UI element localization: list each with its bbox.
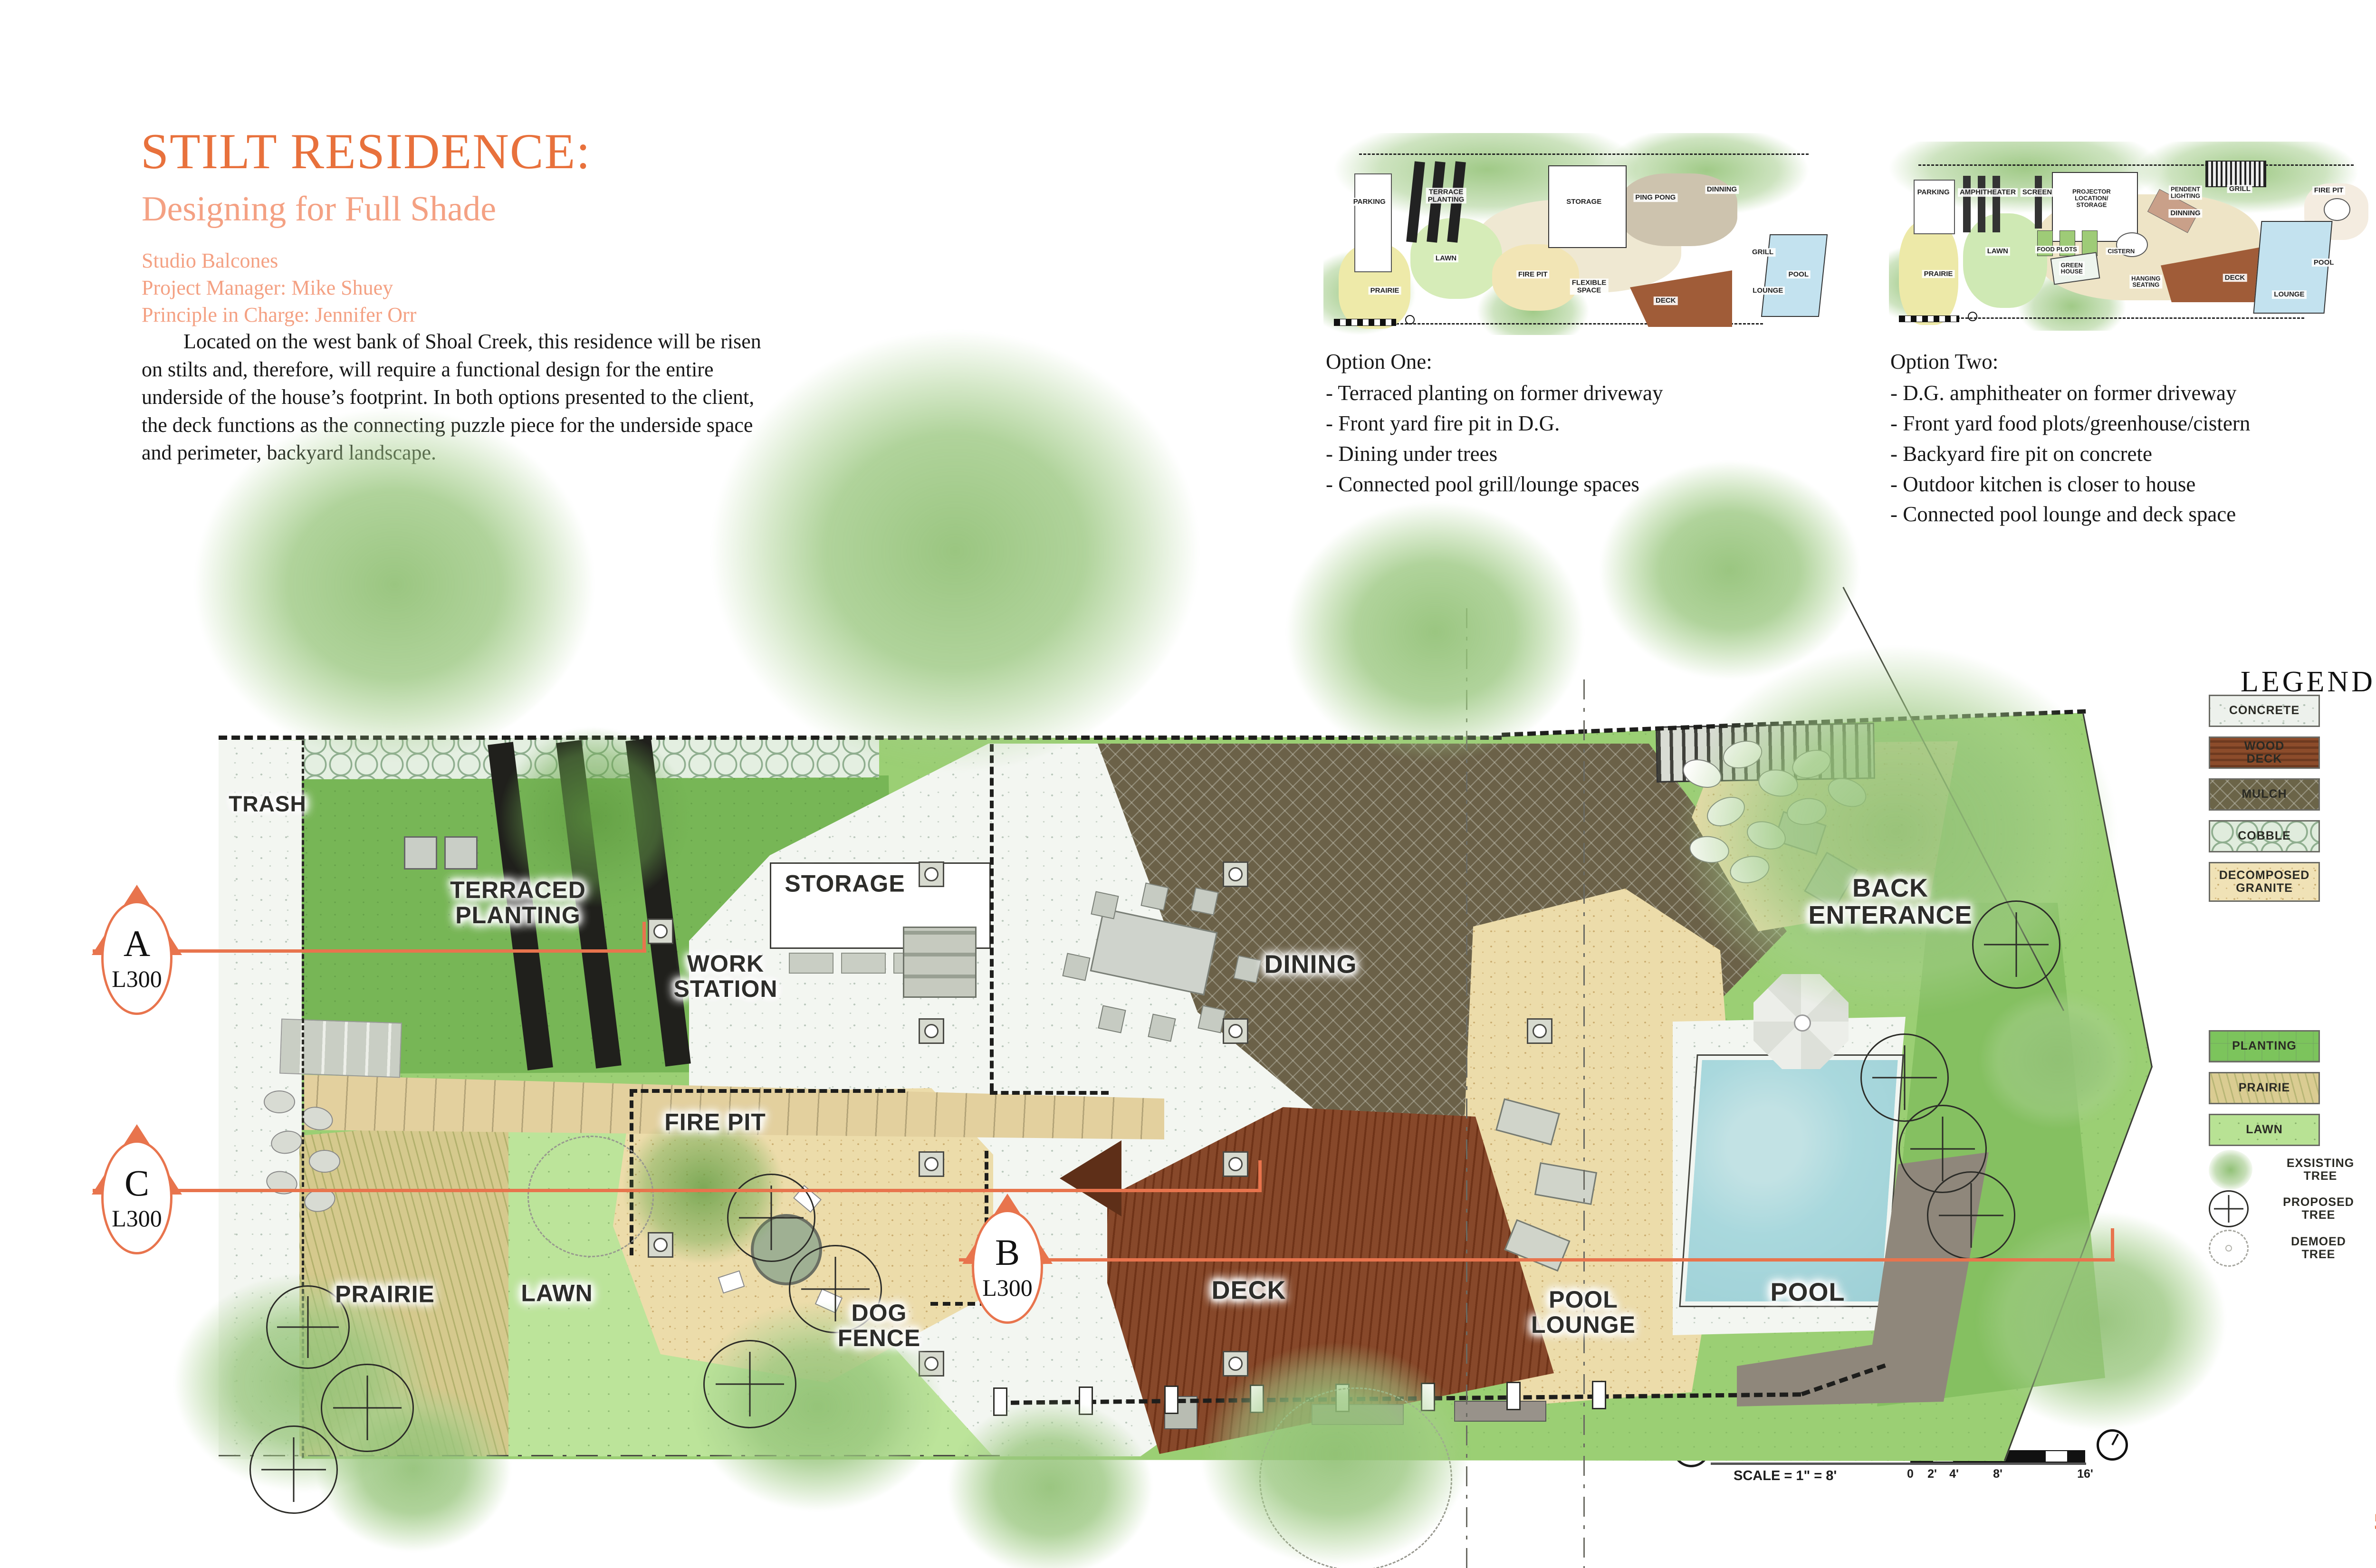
section-marker-a: A L300 <box>92 885 182 955</box>
thumb-screen-line <box>2035 176 2042 229</box>
legend-swatch-planting: PLANTING <box>2209 1030 2320 1062</box>
option-one-text: Option One: - Terraced planting on forme… <box>1326 347 1663 499</box>
thumb-amphitheater-line <box>1993 176 2000 232</box>
demoed-tree-symbol <box>527 1136 654 1257</box>
option-two-item: - Backyard fire pit on concrete <box>1890 439 2250 469</box>
thumb-north-arrow-icon <box>1968 312 1977 321</box>
thumb-label: AMPHITHEATER <box>1958 189 2018 197</box>
section-line-b <box>959 1258 2115 1262</box>
plan-label-work-station: WORK STATION <box>673 951 777 1002</box>
intro-paragraph: Located on the west bank of Shoal Creek,… <box>142 328 769 467</box>
scale-tick: 2' <box>1927 1467 1937 1481</box>
thumb-label: GREEN HOUSE <box>2059 261 2085 275</box>
legend-swatch-concrete: CONCRETE <box>2209 695 2320 727</box>
plan-label-pool-lounge: POOL LOUNGE <box>1531 1287 1636 1338</box>
section-line-b-tick <box>2111 1228 2114 1260</box>
dog-fence-line <box>930 1302 987 1306</box>
dining-chair <box>1148 1013 1176 1042</box>
thumb-label: GRILL <box>1750 248 1775 257</box>
thumb-label: DINNING <box>2168 209 2202 218</box>
thumb-label: POOL <box>2312 258 2336 267</box>
thumb-label: PARKING <box>1351 198 1388 206</box>
plan-label-fire-pit: FIRE PIT <box>664 1110 766 1135</box>
dining-chair <box>1062 953 1090 981</box>
option-one-heading: Option One: <box>1326 347 1663 377</box>
thumb-grill <box>2205 161 2267 187</box>
thumb-pool <box>2253 221 2332 314</box>
legend-demoed-tree: DEMOED TREE <box>2209 1230 2376 1267</box>
thumb-label: LOUNGE <box>1751 287 1785 295</box>
thumb-label: LAWN <box>1985 247 2010 256</box>
drawing-scale: SCALE = 1" = 8' <box>1734 1468 1837 1484</box>
thumb-label: POOL <box>1786 270 1811 279</box>
scale-tick: 8' <box>1993 1467 2002 1481</box>
project-credits: Studio Balcones Project Manager: Mike Sh… <box>142 247 416 329</box>
thumb-boundary <box>1359 153 1809 155</box>
existing-tree-icon <box>2209 1150 2252 1190</box>
street-line <box>219 1455 1003 1456</box>
work-station-desk <box>903 927 977 998</box>
option-one-item: - Connected pool grill/lounge spaces <box>1326 469 1663 500</box>
plan-label-deck: DECK <box>1211 1277 1286 1304</box>
demoed-tree-icon <box>2209 1230 2249 1267</box>
thumb-label: PRAIRIE <box>1922 270 1955 278</box>
scale-tick: 16' <box>2077 1467 2093 1481</box>
option-one-item: - Front yard fire pit in D.G. <box>1326 409 1663 439</box>
page-title: STILT RESIDENCE: <box>141 123 591 181</box>
thumb-label: LAWN <box>1434 254 1458 263</box>
legend-swatch-lawn: LAWN <box>2209 1114 2320 1146</box>
section-letter: A <box>124 925 150 962</box>
thumb-label: TERRACE PLANTING <box>1426 188 1466 204</box>
thumb-label: FLEXIBLE SPACE <box>1570 278 1609 295</box>
option-one-thumbnail: PARKING TERRACE PLANTING STORAGE PING PO… <box>1323 133 1834 335</box>
section-marker-bubble: A L300 <box>101 901 172 1015</box>
thumb-amphitheater-line <box>1963 176 1971 232</box>
thumb-label: PARKING <box>1916 189 1952 197</box>
thumb-label: PENDENT LIGHTING <box>2169 186 2202 200</box>
dog-fence-line <box>630 1089 905 1093</box>
section-letter: B <box>995 1234 1020 1271</box>
thumb-scale-bar <box>1899 316 1959 322</box>
legend-existing-tree: EXSISTING TREE <box>2209 1150 2376 1190</box>
dining-chair <box>1140 882 1169 910</box>
trash-bin <box>444 836 478 870</box>
section-letter: C <box>125 1165 149 1202</box>
thumb-label: PRAIRIE <box>1369 287 1401 295</box>
thumb-boundary <box>1948 317 2304 319</box>
option-two-heading: Option Two: <box>1890 347 2250 377</box>
thumb-label: SCREEN <box>2021 189 2054 197</box>
property-boundary <box>219 736 1502 740</box>
paver-grid <box>279 1019 402 1078</box>
thumb-label: GRILL <box>2227 185 2252 193</box>
legend-swatch-prairie: PRAIRIE <box>2209 1072 2320 1104</box>
dining-chair <box>1091 891 1119 919</box>
demoed-tree-symbol <box>1259 1387 1452 1568</box>
plan-label-trash: TRASH <box>229 793 306 816</box>
thumb-label: FOOD PLOTS <box>2035 246 2079 253</box>
plan-label-prairie: PRAIRIE <box>335 1282 435 1307</box>
thumb-amphitheater-line <box>1978 176 1985 232</box>
house-outline <box>990 1091 1109 1095</box>
plan-label-dog-fence: DOG FENCE <box>838 1300 920 1351</box>
thumb-label: HANGING SEATING <box>2129 275 2162 288</box>
section-marker-bubble: B L300 <box>972 1210 1043 1324</box>
thumb-boundary <box>1918 164 2353 166</box>
credit-studio: Studio Balcones <box>142 247 416 274</box>
thumb-parking-strip <box>1354 173 1392 272</box>
option-two-item: - Outdoor kitchen is closer to house <box>1890 469 2250 500</box>
plan-label-back-enterance: BACK ENTERANCE <box>1808 875 1972 929</box>
presentation-page: STILT RESIDENCE: Designing for Full Shad… <box>0 0 2376 1568</box>
thumb-label: PROJECTOR LOCATION/ STORAGE <box>2070 188 2113 209</box>
thumb-firepit-circle <box>2324 198 2350 221</box>
dining-chair <box>1198 1005 1226 1033</box>
plan-label-dining: DINING <box>1265 951 1357 978</box>
plan-label-storage: STORAGE <box>785 871 905 897</box>
credit-principal: Principle in Charge: Jennifer Orr <box>142 301 416 328</box>
option-two-thumbnail: PARKING AMPHITHEATER SCREEN PROJECTOR LO… <box>1889 142 2376 331</box>
bench <box>1454 1401 1546 1422</box>
section-line-a-tick <box>642 922 646 951</box>
thumb-gravel-area <box>1620 173 1737 246</box>
legend-swatch-decomposed-granite: DECOMPOSED GRANITE <box>2209 862 2320 902</box>
thumb-label: CISTERN <box>2106 248 2136 255</box>
utility-line <box>1466 608 1467 1568</box>
option-two-item: - D.G. amphitheater on former driveway <box>1890 378 2250 409</box>
proposed-tree-icon <box>2209 1190 2249 1227</box>
legend-proposed-tree: PROPOSED TREE <box>2209 1190 2376 1227</box>
thumb-label: FIRE PIT <box>2312 187 2346 195</box>
section-sheet: L300 <box>112 967 162 991</box>
section-marker-b: B L300 <box>962 1194 1053 1264</box>
section-marker-c: C L300 <box>92 1124 182 1195</box>
thumb-label: DINNING <box>1705 185 1739 194</box>
thumb-scale-bar <box>1334 319 1396 326</box>
option-two-text: Option Two: - D.G. amphitheater on forme… <box>1890 347 2250 530</box>
trash-bin <box>404 836 437 870</box>
section-line-c <box>93 1189 1262 1192</box>
thumb-label: DECK <box>2223 274 2247 282</box>
page-subtitle: Designing for Full Shade <box>142 189 496 229</box>
legend-swatch-mulch: MULCH <box>2209 778 2320 811</box>
intro-paragraph-text: Located on the west bank of Shoal Creek,… <box>142 330 761 464</box>
thumb-label: PING PONG <box>1633 193 1677 202</box>
section-marker-bubble: C L300 <box>101 1140 172 1254</box>
thumb-parking-strip <box>1914 180 1955 234</box>
section-sheet: L300 <box>982 1276 1033 1300</box>
thumb-label: STORAGE <box>1564 198 1603 206</box>
option-one-item: - Terraced planting on former driveway <box>1326 378 1663 409</box>
plan-label-lawn: LAWN <box>521 1281 593 1306</box>
credit-pm: Project Manager: Mike Shuey <box>142 274 416 301</box>
plan-label-terraced-planting: TERRACED PLANTING <box>450 878 586 928</box>
storage-paver <box>841 953 886 974</box>
option-two-item: - Front yard food plots/greenhouse/ciste… <box>1890 409 2250 439</box>
plan-label-pool: POOL <box>1770 1279 1845 1306</box>
thumb-label: FIRE PIT <box>1516 270 1550 279</box>
scale-tick: 0 <box>1907 1467 1914 1481</box>
section-sheet: L300 <box>112 1206 162 1230</box>
thumb-label: LOUNGE <box>2272 291 2306 299</box>
legend-swatch-cobble: COBBLE <box>2209 820 2320 852</box>
umbrella-center <box>1794 1014 1811 1032</box>
thumb-north-arrow-icon <box>1405 315 1415 325</box>
storage-paver <box>789 953 834 974</box>
thumb-label: DECK <box>1654 296 1678 305</box>
scale-tick: 4' <box>1949 1467 1959 1481</box>
house-outline <box>990 744 994 1091</box>
thumb-storage-box <box>1548 165 1627 248</box>
dining-chair <box>1233 955 1261 983</box>
dining-chair <box>1190 887 1218 915</box>
option-one-item: - Dining under trees <box>1326 439 1663 469</box>
legend-swatch-wood-deck: WOOD DECK <box>2209 736 2320 769</box>
section-line-c-tick <box>1258 1160 1262 1191</box>
page-number: 5 <box>2374 1509 2376 1535</box>
dining-chair <box>1098 1005 1126 1033</box>
utility-line <box>1583 679 1585 1568</box>
legend-title: LEGEND <box>2241 665 2376 699</box>
